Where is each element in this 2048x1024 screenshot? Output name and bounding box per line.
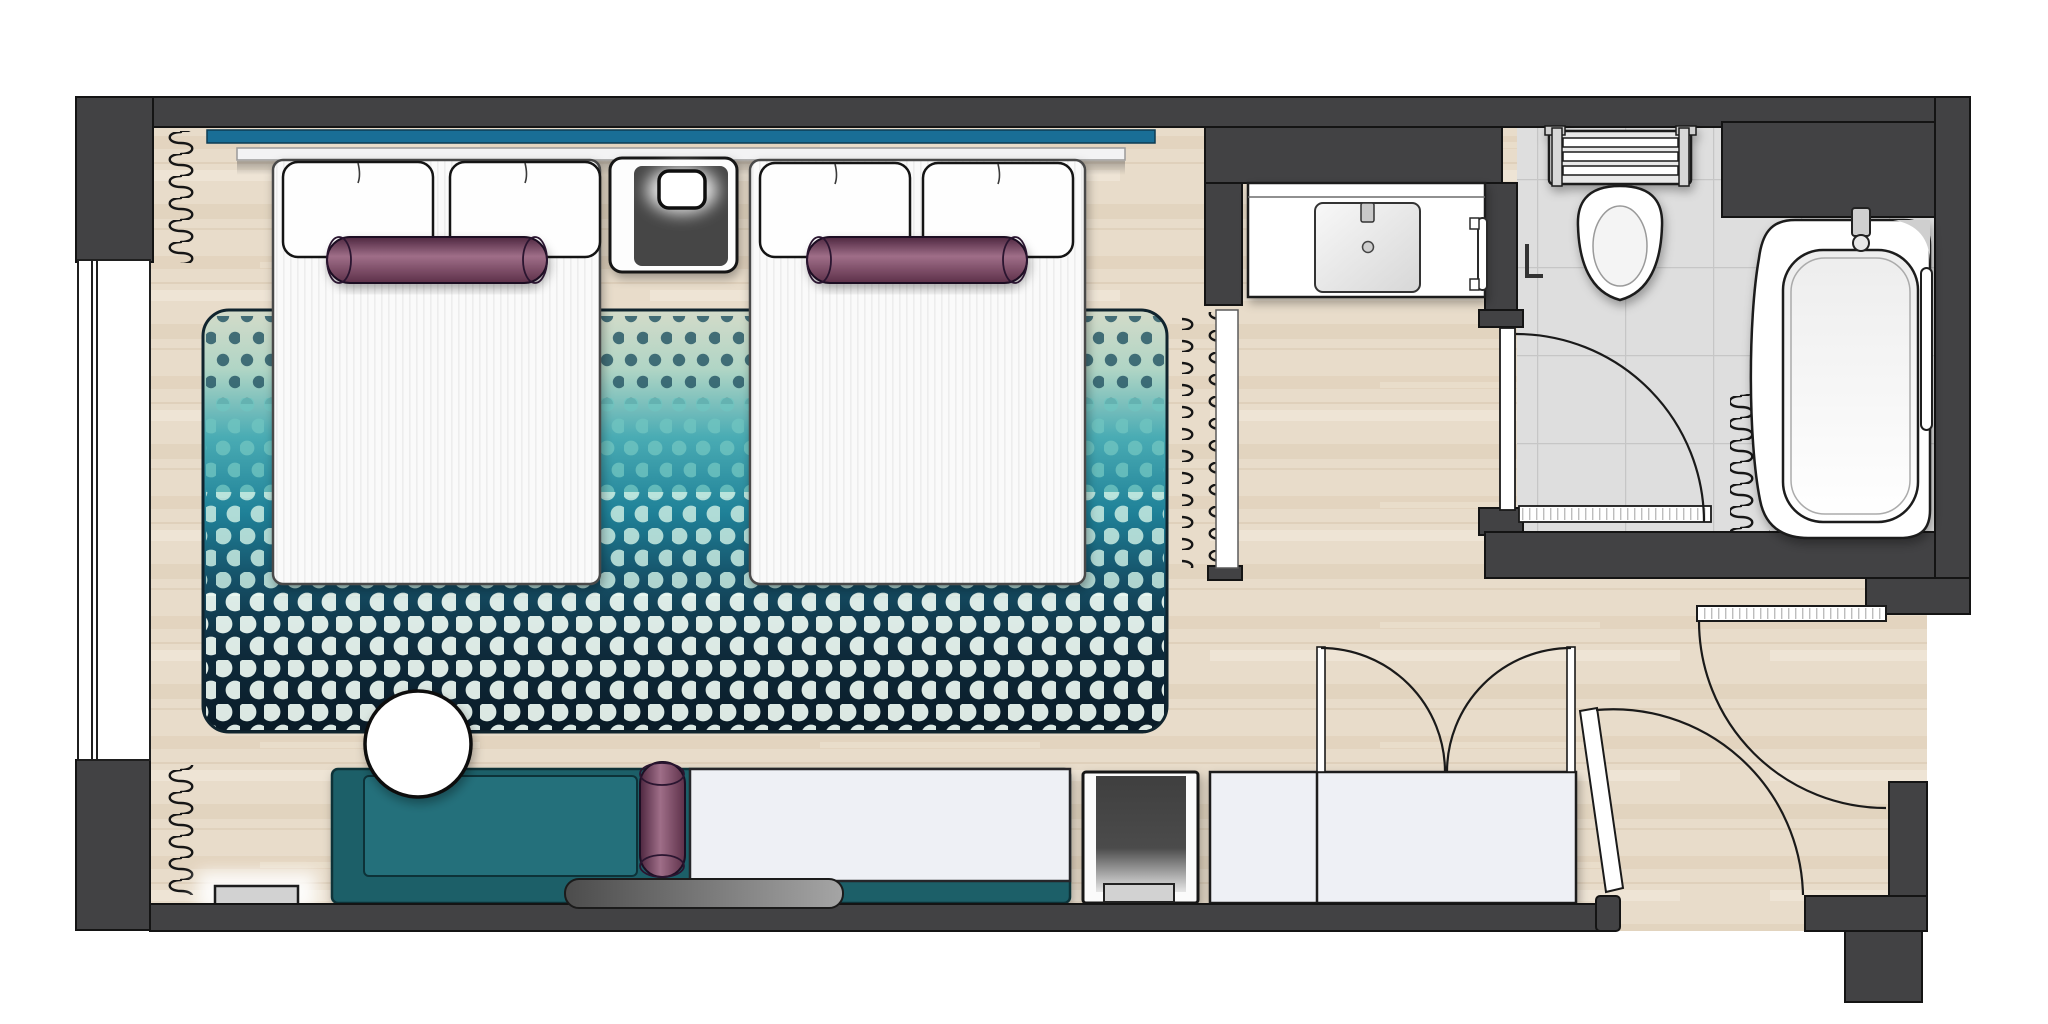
divider-partition-panel xyxy=(1216,310,1238,568)
floor-vent xyxy=(215,886,298,905)
floor-plan xyxy=(0,0,2048,1024)
wardrobe-door-leaf-left xyxy=(1317,647,1325,772)
twin-bed-right xyxy=(750,160,1085,584)
sink-faucet xyxy=(1361,203,1374,222)
tub-basin xyxy=(1783,250,1918,522)
bolster-cushion xyxy=(327,237,547,283)
sink-drain xyxy=(1363,242,1374,253)
wall-vanity-header xyxy=(1205,127,1502,183)
wall-right xyxy=(1935,97,1970,578)
wall-pilaster-b xyxy=(1479,508,1523,535)
rack-slat xyxy=(1563,152,1678,161)
wall-bottom-right-band xyxy=(1805,896,1927,931)
work-console xyxy=(690,769,1070,881)
headboard-panel xyxy=(207,130,1155,143)
radiator-coil-top-left xyxy=(158,131,198,263)
tub-faucet-knob xyxy=(1853,235,1869,251)
bolster-cushion xyxy=(807,237,1027,283)
wall-pilaster-a xyxy=(1479,310,1523,327)
wardrobe-door-leaf-right xyxy=(1567,647,1575,772)
wall-divider-stub xyxy=(1205,183,1242,305)
wall-corner-bottom-left xyxy=(76,760,150,930)
wall-bottom-right-foot xyxy=(1845,931,1922,1002)
wardrobe-body xyxy=(1210,772,1576,903)
storage-bench xyxy=(565,879,843,908)
toilet-bowl-inner xyxy=(1593,206,1647,286)
rack-slat xyxy=(1563,166,1678,175)
window-frame xyxy=(78,260,150,760)
minibar-cabinet xyxy=(1083,772,1198,903)
tub-faucet xyxy=(1852,208,1870,236)
bathroom-threshold-hatch xyxy=(1521,508,1709,520)
wardrobe xyxy=(1210,772,1576,903)
vanity xyxy=(1248,183,1487,297)
seat-bolster xyxy=(640,762,685,877)
minibar-interior xyxy=(1096,776,1186,892)
minibar-tray xyxy=(1104,884,1174,902)
towel-rail-prong xyxy=(1470,279,1479,290)
rug-dots-row4 xyxy=(206,590,1164,730)
floor-plan-canvas xyxy=(0,0,2048,1024)
rack-slat xyxy=(1563,138,1678,147)
wall-bathroom-left xyxy=(1485,183,1517,312)
side-table-top xyxy=(365,691,471,797)
rack-post xyxy=(1552,128,1562,186)
wall-corner-top-left xyxy=(76,97,153,262)
wall-top xyxy=(76,97,1970,127)
bathtub-group xyxy=(1751,208,1932,538)
rack-post xyxy=(1679,128,1689,186)
nightstand xyxy=(610,158,737,272)
window xyxy=(78,260,150,760)
tub-grab-rail xyxy=(1921,268,1932,430)
twin-bed-left xyxy=(273,160,600,584)
radiator-coil-bottom-left xyxy=(158,765,198,895)
wall-chunk-top-right xyxy=(1722,122,1935,217)
table-lamp xyxy=(659,171,705,208)
corridor-door-hatch xyxy=(1699,608,1884,619)
bathroom-door-leaf xyxy=(1500,328,1515,510)
round-side-table xyxy=(365,691,471,797)
wall-bottom-end-cap xyxy=(1596,896,1620,931)
towel-rail-prong xyxy=(1470,218,1479,229)
wall-bottom xyxy=(150,904,1607,931)
